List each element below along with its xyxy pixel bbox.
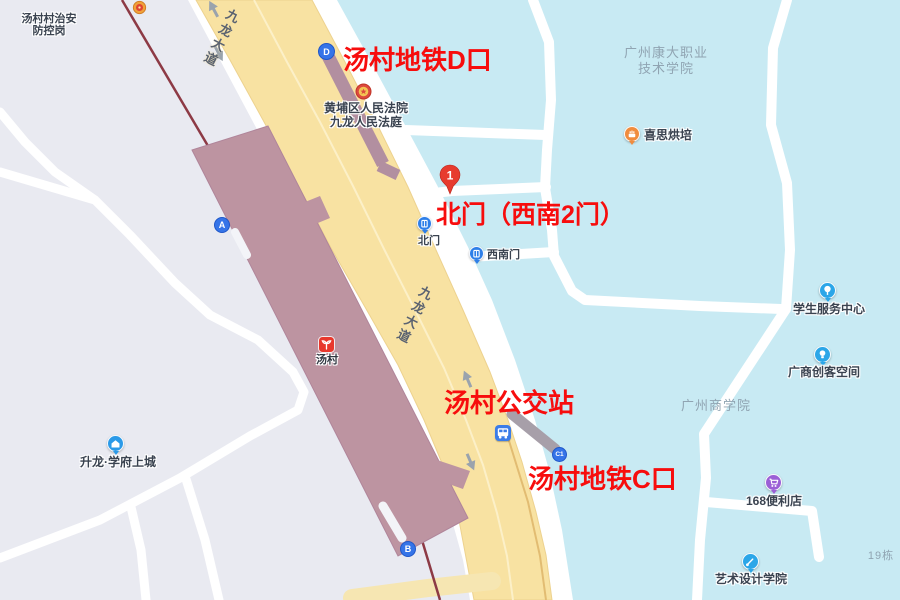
result-marker-1[interactable]: 1 — [439, 164, 461, 196]
store-168-icon[interactable] — [765, 474, 782, 491]
student-center-icon[interactable] — [819, 282, 836, 299]
metro-entrance-d-icon[interactable]: D — [318, 43, 335, 60]
bakery-label[interactable]: 喜思烘培 — [644, 128, 692, 142]
annotation-bus-station: 汤村公交站 — [444, 390, 574, 417]
store-168-label[interactable]: 168便利店 — [746, 494, 802, 508]
gate-north-label[interactable]: 北门 — [418, 235, 440, 247]
art-school-label[interactable]: 艺术设计学院 — [715, 572, 787, 586]
metro-entrance-b-icon[interactable]: B — [400, 541, 416, 557]
bakery-icon[interactable] — [624, 126, 640, 142]
building-19-label: 19栋 — [868, 548, 894, 564]
gate-southwest-label[interactable]: 西南门 — [487, 249, 520, 261]
court-label[interactable]: 黄埔区人民法院 九龙人民法庭 — [324, 101, 408, 129]
security-badge-icon[interactable] — [132, 0, 147, 20]
gate-southwest-icon[interactable] — [469, 246, 484, 261]
residence-label[interactable]: 升龙·学府上城 — [80, 455, 156, 469]
marker-number: 1 — [447, 169, 454, 183]
kangda-college-label: 广州康大职业 技术学院 — [624, 45, 708, 77]
art-school-icon[interactable] — [742, 553, 759, 570]
maker-space-label[interactable]: 广商创客空间 — [788, 365, 860, 379]
bus-stop-icon[interactable] — [495, 425, 511, 441]
student-center-label[interactable]: 学生服务中心 — [793, 302, 865, 316]
metro-entrance-c1-icon[interactable]: C1 — [552, 447, 567, 462]
security-post-label[interactable]: 汤村村治安 防控岗 — [22, 13, 77, 37]
maker-space-icon[interactable] — [814, 346, 831, 363]
annotation-north-gate: 北门（西南2门） — [436, 202, 625, 228]
annotation-c-exit: 汤村地铁C口 — [528, 466, 677, 493]
map-canvas[interactable]: 九龙大道 九龙大道 汤村地铁D口 北门（西南2门） 汤村公交站 汤村地铁C口 1… — [0, 0, 900, 600]
annotation-d-exit: 汤村地铁D口 — [343, 47, 492, 74]
station-name-label[interactable]: 汤村 — [316, 354, 338, 366]
residence-icon[interactable] — [107, 435, 124, 452]
business-college-label: 广州商学院 — [681, 398, 751, 414]
map-base-layer — [0, 0, 900, 600]
metro-entrance-a-icon[interactable]: A — [214, 217, 230, 233]
metro-logo-icon[interactable] — [319, 337, 334, 352]
gate-north-icon[interactable] — [417, 216, 432, 231]
